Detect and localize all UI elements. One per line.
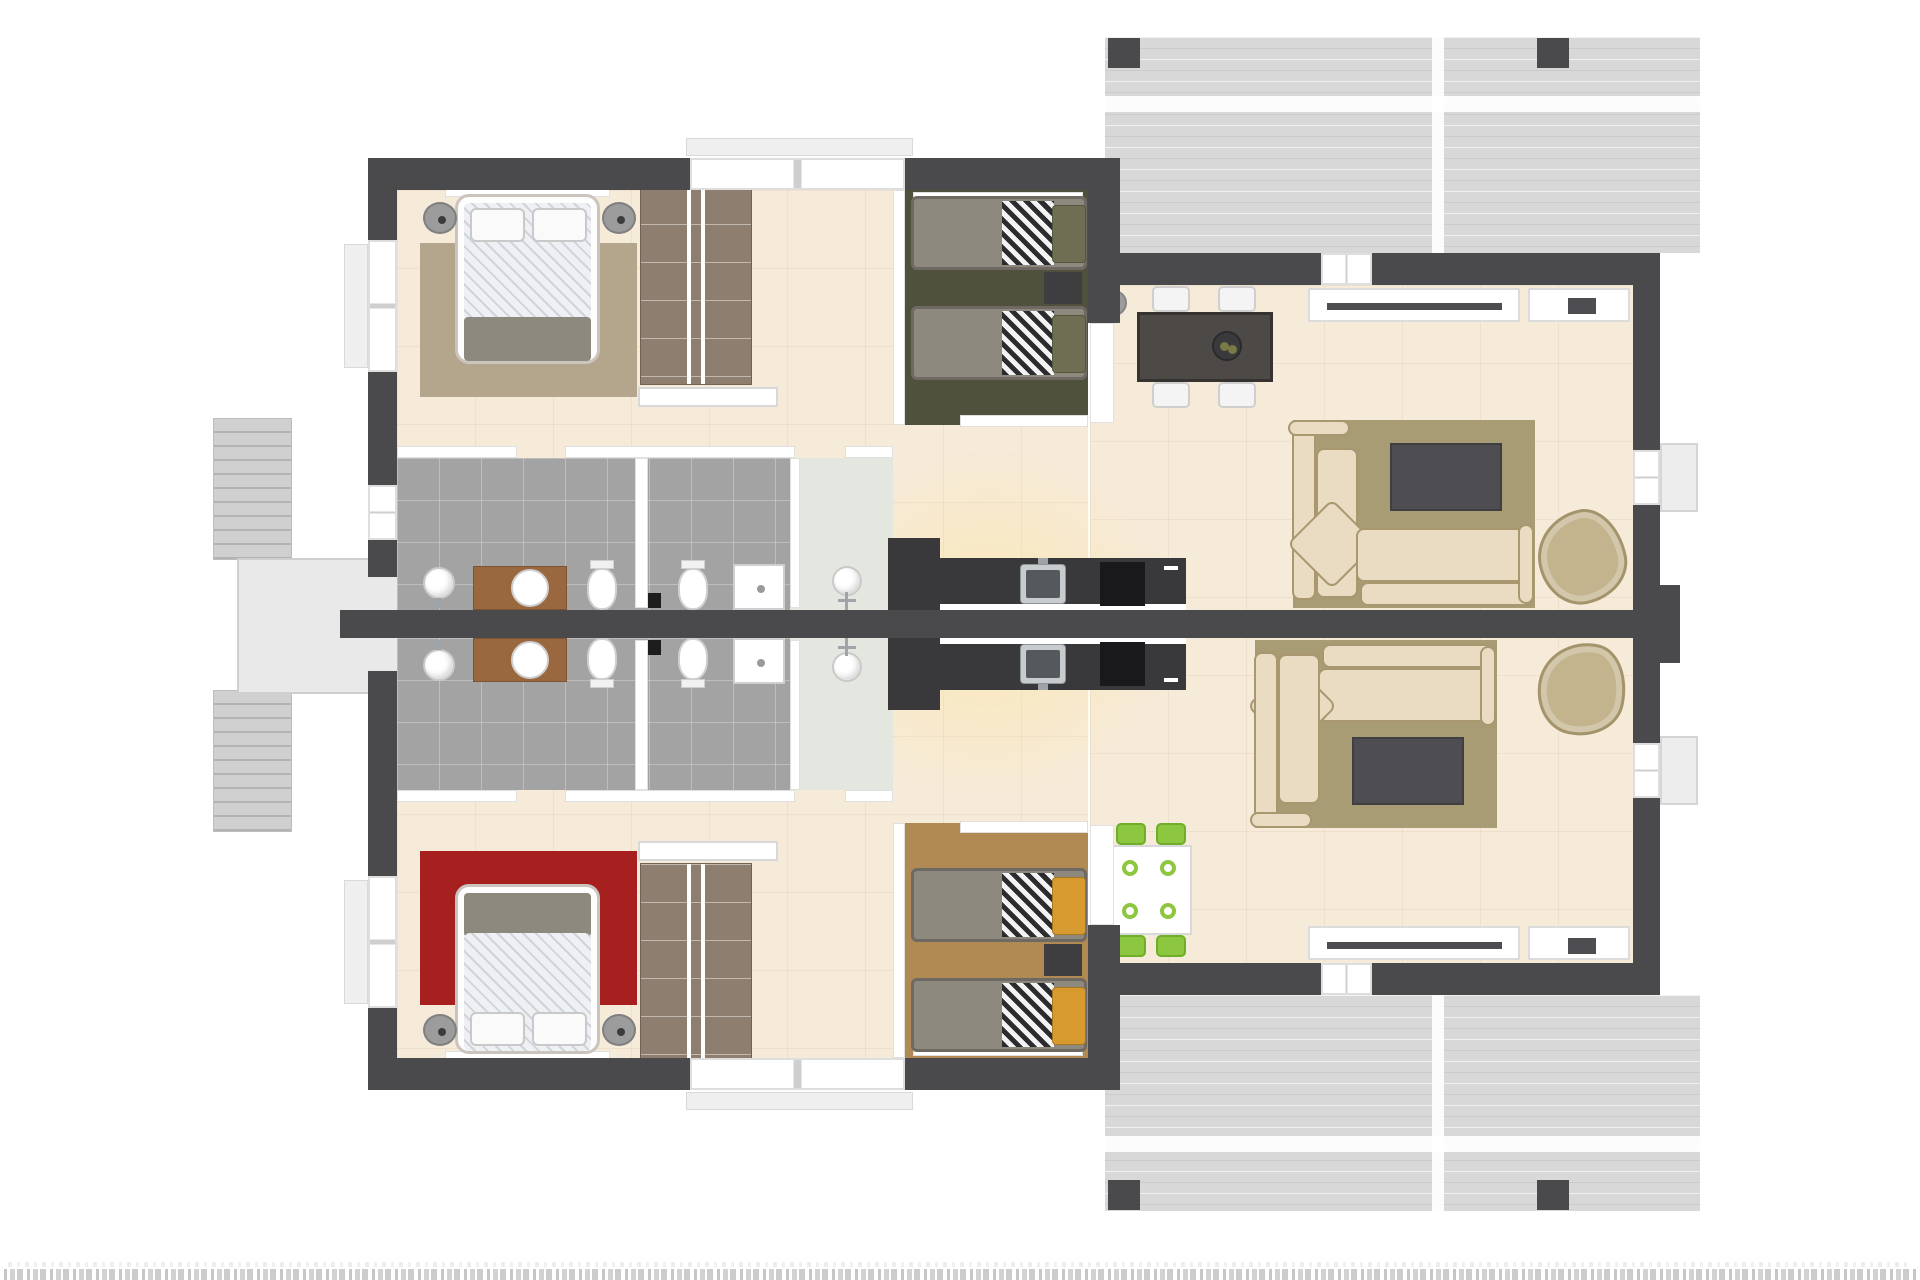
- floor-plan: [0, 0, 1920, 1280]
- pedestal-basin: [423, 567, 455, 599]
- lamp: [617, 216, 625, 224]
- terrace-door-lower: [1321, 963, 1372, 995]
- deck-gap: [1105, 1136, 1700, 1152]
- striped-duvet: [1002, 873, 1054, 937]
- twin-bed: [911, 196, 1087, 270]
- striped-duvet: [1002, 201, 1054, 265]
- lamp: [617, 1028, 625, 1036]
- striped-duvet: [1002, 311, 1054, 375]
- wall-twin-room-corner: [1088, 925, 1120, 1090]
- chrome-stem: [434, 640, 442, 650]
- kitchen-cabinet-upper: [888, 538, 940, 610]
- lamp: [438, 1028, 446, 1036]
- wardrobe-upper: [640, 185, 752, 385]
- bath-divider: [635, 640, 648, 790]
- twin-nightstand: [1044, 944, 1082, 976]
- sideboard-upper-right: [1528, 288, 1630, 322]
- cooktop: [1100, 562, 1145, 606]
- cooktop: [1100, 642, 1145, 686]
- window-left-mid: [368, 485, 397, 540]
- console-shelf-lower: [638, 841, 778, 861]
- deck-seam: [1432, 995, 1444, 1211]
- wall-left: [368, 1008, 397, 1090]
- sideboard-upper: [1308, 288, 1520, 322]
- kitchen-sink: [1020, 644, 1066, 684]
- wall-twin-room-corner: [1088, 158, 1120, 323]
- bath-wall: [565, 790, 795, 802]
- decor: [1568, 938, 1596, 954]
- kitchen-cabinet-lower: [888, 638, 940, 710]
- sofa-seat: [1318, 668, 1496, 722]
- drain: [757, 659, 765, 667]
- green-plate: [1160, 860, 1176, 876]
- shower-valve: [845, 592, 848, 610]
- toilet: [678, 568, 708, 610]
- wall-right: [1633, 663, 1660, 743]
- shower-tray: [733, 564, 785, 610]
- drain: [757, 585, 765, 593]
- wall-top: [368, 158, 690, 190]
- nightstand: [423, 1014, 457, 1046]
- nightstand: [602, 202, 636, 234]
- deck-post: [1108, 38, 1140, 68]
- sofa-back: [1322, 644, 1496, 668]
- twin-bed: [911, 978, 1087, 1052]
- dining-chair-green: [1156, 823, 1186, 845]
- toilet-tank: [590, 679, 614, 688]
- window-sill: [686, 138, 913, 156]
- pillow: [470, 208, 525, 242]
- dining-chair-white: [1152, 286, 1190, 312]
- round-basin: [511, 569, 549, 607]
- amber-pillow: [1052, 987, 1086, 1045]
- twin-bed: [911, 306, 1087, 380]
- wall-left: [368, 671, 397, 708]
- terrace-door-upper: [1321, 253, 1372, 285]
- balcony-pad-lower: [1660, 736, 1698, 805]
- deck-post: [1108, 1180, 1140, 1210]
- cropped-caption-row: [8, 1262, 1912, 1267]
- bath-wall: [845, 790, 893, 802]
- toilet: [587, 638, 617, 680]
- sofa-armrest: [1518, 524, 1534, 604]
- bed-blanket: [464, 317, 591, 361]
- sofa-armrest: [1480, 646, 1496, 726]
- green-plate: [1122, 903, 1138, 919]
- dining-chair-white: [1152, 382, 1190, 408]
- sink-bowl: [1026, 570, 1060, 598]
- dining-chair-green: [1156, 935, 1186, 957]
- bath-wall: [845, 446, 893, 458]
- double-bed: [455, 194, 600, 364]
- wall-left: [368, 540, 397, 577]
- bath-wall: [565, 446, 795, 458]
- counter-detail: [1164, 566, 1178, 570]
- twin-room-wall: [960, 821, 1088, 833]
- window-left-upper: [368, 240, 397, 372]
- toilet: [587, 568, 617, 610]
- toilet-tank: [681, 679, 705, 688]
- sofa-armrest: [1288, 420, 1350, 436]
- dining-chair-white: [1218, 286, 1256, 312]
- faucet: [1038, 558, 1048, 564]
- wall-bottom-right-block: [1090, 963, 1321, 995]
- balcony-pad-upper: [1660, 443, 1698, 512]
- nightstand: [602, 1014, 636, 1046]
- wardrobe-lower: [640, 863, 752, 1063]
- deck-post: [1537, 1180, 1569, 1210]
- pedestal-basin: [423, 649, 455, 681]
- window-bottom: [690, 1058, 905, 1090]
- wall-bottom: [368, 1058, 690, 1090]
- counter-edge: [940, 638, 1186, 644]
- kitchen-sink: [1020, 564, 1066, 604]
- partition-white: [1090, 825, 1114, 925]
- twin-bed: [911, 868, 1087, 942]
- sofa-back: [1254, 652, 1278, 824]
- twin-nightstand: [1044, 272, 1082, 304]
- shower-tray: [733, 638, 785, 684]
- wall-right-pillar: [1633, 585, 1680, 663]
- toilet: [678, 638, 708, 680]
- shower-valve: [845, 638, 848, 656]
- wall-bottom-right-block: [1372, 963, 1660, 995]
- bath-divider: [635, 458, 648, 608]
- window-left-lower: [368, 876, 397, 1008]
- dining-chair-green: [1116, 935, 1146, 957]
- dining-table-upper: [1137, 312, 1273, 382]
- wall-left: [368, 708, 397, 876]
- pillow: [532, 1012, 587, 1046]
- striped-duvet: [1002, 983, 1054, 1047]
- deck-post: [1537, 38, 1569, 68]
- fruit-bowl: [1212, 331, 1242, 361]
- sideboard-detail: [1327, 942, 1502, 949]
- chrome-stem: [434, 598, 442, 608]
- terrace-lower-deck: [1105, 995, 1700, 1211]
- window-right-lower: [1633, 743, 1660, 798]
- terrace-upper-deck: [1105, 37, 1700, 253]
- twin-room-wall: [893, 823, 905, 1058]
- olive-pillow: [1052, 205, 1086, 263]
- round-basin: [511, 641, 549, 679]
- entry-stair-flight-upper: [213, 418, 292, 560]
- lamp: [438, 216, 446, 224]
- dining-table-lower: [1112, 845, 1192, 935]
- amber-pillow: [1052, 877, 1086, 935]
- deck-gap: [1105, 96, 1700, 112]
- shower-wall: [790, 640, 800, 790]
- wall-left: [368, 372, 397, 485]
- partition-white: [1090, 323, 1114, 423]
- wall-right: [1633, 505, 1660, 585]
- bed-blanket: [464, 893, 591, 937]
- console-shelf-upper: [638, 387, 778, 407]
- window-sill: [344, 880, 368, 1004]
- sideboard-detail: [1327, 303, 1502, 310]
- green-plate: [1160, 903, 1176, 919]
- pillow: [532, 208, 587, 242]
- sideboard-lower-right: [1528, 926, 1630, 960]
- party-wall: [340, 610, 1660, 638]
- wall-right: [1633, 798, 1660, 995]
- window-sill: [344, 244, 368, 368]
- window-top: [690, 158, 905, 190]
- tv-table-lower: [1352, 737, 1464, 805]
- sofa-back: [1360, 582, 1534, 606]
- sideboard-lower: [1308, 926, 1520, 960]
- sofa-seat: [1278, 654, 1320, 804]
- wall-top-right-block: [1090, 253, 1321, 285]
- sink-bowl: [1026, 650, 1060, 678]
- deck-seam: [1432, 37, 1444, 253]
- wall-right: [1633, 253, 1660, 450]
- sofa-seat: [1356, 528, 1534, 582]
- dining-chair-white: [1218, 382, 1256, 408]
- pillow: [470, 1012, 525, 1046]
- wall-left: [368, 158, 397, 240]
- wall-top-right-block: [1372, 253, 1660, 285]
- olive-pillow: [1052, 315, 1086, 373]
- sofa-back: [1292, 428, 1316, 600]
- bath-wall: [397, 790, 517, 802]
- fruit: [1228, 345, 1237, 354]
- decor: [1568, 298, 1596, 314]
- counter-detail: [1164, 678, 1178, 682]
- bath-wall: [397, 446, 517, 458]
- window-right-upper: [1633, 450, 1660, 505]
- sofa-armrest: [1250, 812, 1312, 828]
- tv-table-upper: [1390, 443, 1502, 511]
- green-plate: [1122, 860, 1138, 876]
- shower-wall: [790, 458, 800, 608]
- nightstand: [423, 202, 457, 234]
- dining-chair-green: [1116, 823, 1146, 845]
- cropped-caption-row: [4, 1269, 1916, 1280]
- window-sill: [686, 1092, 913, 1110]
- double-bed-red-room: [455, 884, 600, 1054]
- entry-stair-flight-lower: [213, 690, 292, 832]
- faucet: [1038, 684, 1048, 690]
- twin-room-wall: [893, 190, 905, 425]
- rain-shower-head: [832, 652, 862, 682]
- twin-room-wall: [960, 415, 1088, 427]
